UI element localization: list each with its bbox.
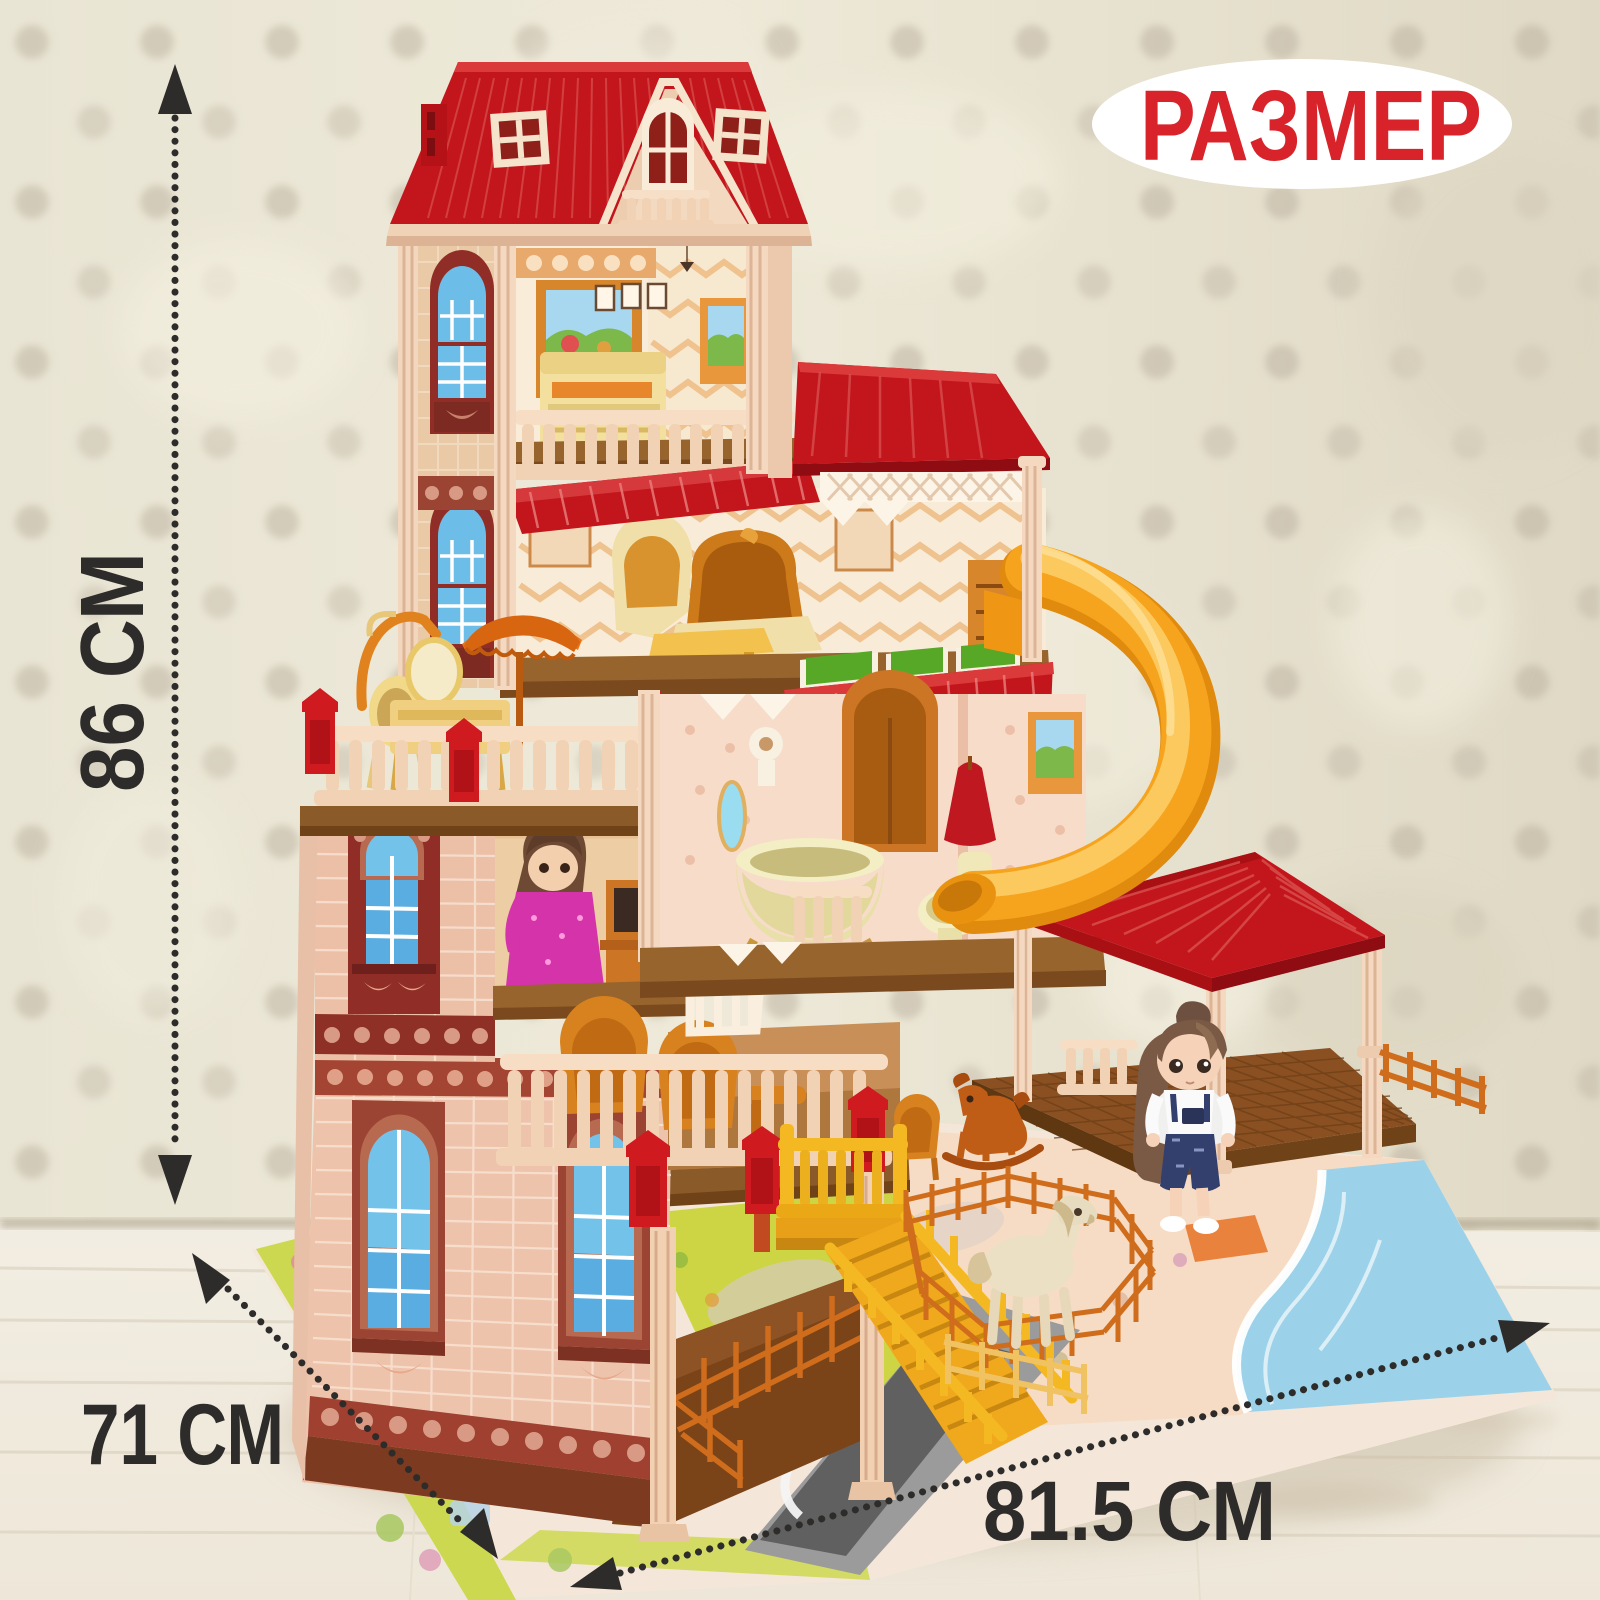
svg-text:81.5 СМ: 81.5 СМ [983,1464,1276,1558]
svg-text:86 СМ: 86 СМ [63,552,163,792]
svg-text:71 СМ: 71 СМ [81,1387,284,1483]
svg-text:РАЗМЕР: РАЗМЕР [1140,70,1482,182]
